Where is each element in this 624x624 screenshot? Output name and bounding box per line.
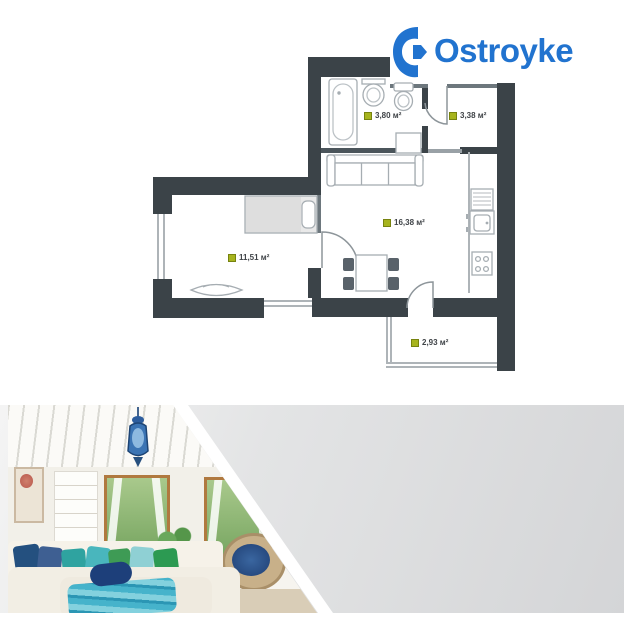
area-label-bathroom: 3,80 м² <box>364 111 401 120</box>
label-square-icon <box>383 219 391 227</box>
area-label-hall: 3,38 м² <box>449 111 486 120</box>
area-label-bedroom: 11,51 м² <box>228 253 269 262</box>
label-square-icon <box>228 254 236 262</box>
label-square-icon <box>364 112 372 120</box>
lantern-icon <box>120 407 156 471</box>
floorplan-drawing <box>0 0 624 400</box>
interior-photo <box>8 405 318 613</box>
area-label-kitchen: 16,38 м² <box>383 218 425 227</box>
label-square-icon <box>449 112 457 120</box>
label-square-icon <box>411 339 419 347</box>
flyer-page: Ostroyke <box>0 0 624 624</box>
bedroom-furniture <box>191 196 317 296</box>
info-panel: Планування 1Ж Кімнат - 1 Поверх - 1-8 Ку… <box>0 405 624 613</box>
area-label-balcony: 2,93 м² <box>411 338 448 347</box>
photo-picture-frame <box>14 467 44 523</box>
